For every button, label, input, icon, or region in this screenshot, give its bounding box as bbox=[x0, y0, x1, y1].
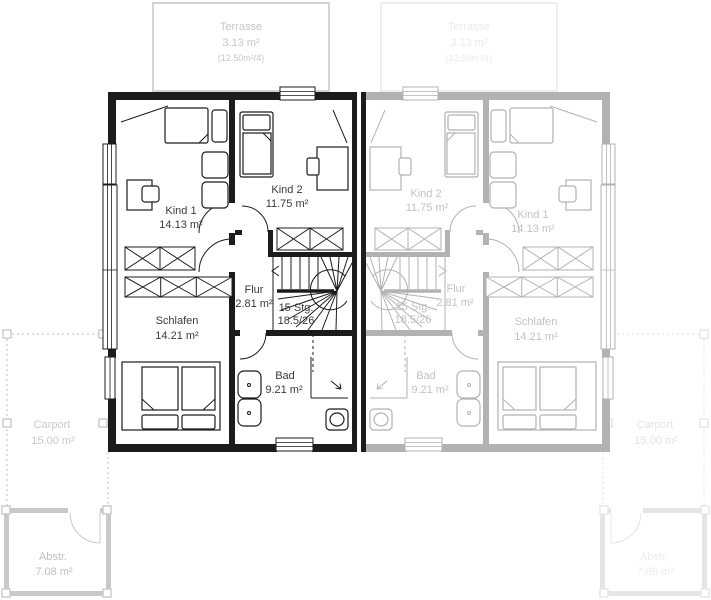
room-label-schlafen-left-area: 14.21 m² bbox=[155, 330, 199, 342]
stair-label-left-line2: 18.5/26 bbox=[278, 315, 315, 327]
room-label-bad-right-name: Bad bbox=[416, 370, 436, 382]
room-label-schlafen-right-area: 14.21 m² bbox=[514, 331, 558, 343]
room-label-carport-right-area: 15.00 m² bbox=[634, 435, 678, 447]
room-label-abstr-left-name: Abstr. bbox=[39, 551, 67, 563]
room-label-terrasse-right-name: Terrasse bbox=[448, 21, 490, 33]
room-label-kind2-right-area: 11.75 m² bbox=[406, 202, 449, 214]
stair-label-right-line1: 15 Stg. bbox=[396, 301, 431, 313]
unit-left bbox=[103, 87, 357, 452]
room-label-abstr-left-area: 7.08 m² bbox=[35, 566, 73, 578]
room-label-kind2-left-area: 11.75 m² bbox=[266, 198, 309, 210]
room-label-abstr-right-name: Abstr. bbox=[640, 551, 668, 563]
room-label-carport-left-area: 15.00 m² bbox=[31, 435, 75, 447]
room-label-kind1-left-area: 14.13 m² bbox=[159, 219, 203, 231]
room-label-kind1-left-name: Kind 1 bbox=[165, 205, 196, 217]
room-label-kind1-right-area: 14.13 m² bbox=[511, 223, 555, 235]
room-label-terrasse-right-area: 3.13 m² bbox=[450, 37, 488, 49]
floor-plan-canvas: Terrasse 3.13 m² (12.50m²/4) Kind 1 14.1… bbox=[0, 0, 711, 600]
stair-label-left-line1: 15 Stg. bbox=[279, 302, 314, 314]
room-label-bad-left-area: 9.21 m² bbox=[265, 384, 303, 396]
room-label-kind2-right-name: Kind 2 bbox=[410, 188, 441, 200]
labels-right: Terrasse 3.13 m² (12.50m²/4) Kind 2 11.7… bbox=[395, 21, 678, 578]
room-label-flur-right-name: Flur bbox=[447, 283, 466, 295]
party-wall bbox=[361, 92, 366, 452]
room-label-carport-right-name: Carport bbox=[637, 419, 674, 431]
room-label-carport-left-name: Carport bbox=[34, 419, 71, 431]
room-label-flur-left-name: Flur bbox=[245, 284, 264, 296]
room-label-schlafen-right-name: Schlafen bbox=[515, 316, 558, 328]
room-label-kind1-right-name: Kind 1 bbox=[517, 209, 548, 221]
room-label-flur-right-area: 2.81 m² bbox=[436, 297, 474, 309]
room-label-schlafen-left-name: Schlafen bbox=[156, 315, 199, 327]
room-label-flur-left-area: 2.81 m² bbox=[235, 298, 273, 310]
room-label-kind2-left-name: Kind 2 bbox=[271, 184, 302, 196]
room-label-terrasse-left-note: (12.50m²/4) bbox=[218, 53, 265, 63]
room-label-terrasse-left-name: Terrasse bbox=[220, 21, 262, 33]
room-label-terrasse-right-note: (12.50m²/4) bbox=[446, 53, 493, 63]
room-label-bad-right-area: 9.21 m² bbox=[411, 384, 449, 396]
room-label-bad-left-name: Bad bbox=[275, 370, 295, 382]
room-label-abstr-right-area: 7.08 m² bbox=[636, 566, 674, 578]
room-label-terrasse-left-area: 3.13 m² bbox=[222, 37, 260, 49]
labels-left: Terrasse 3.13 m² (12.50m²/4) Kind 1 14.1… bbox=[31, 21, 314, 578]
unit-right-ghost bbox=[361, 87, 615, 452]
stair-label-right-line2: 18.5/26 bbox=[395, 314, 432, 326]
